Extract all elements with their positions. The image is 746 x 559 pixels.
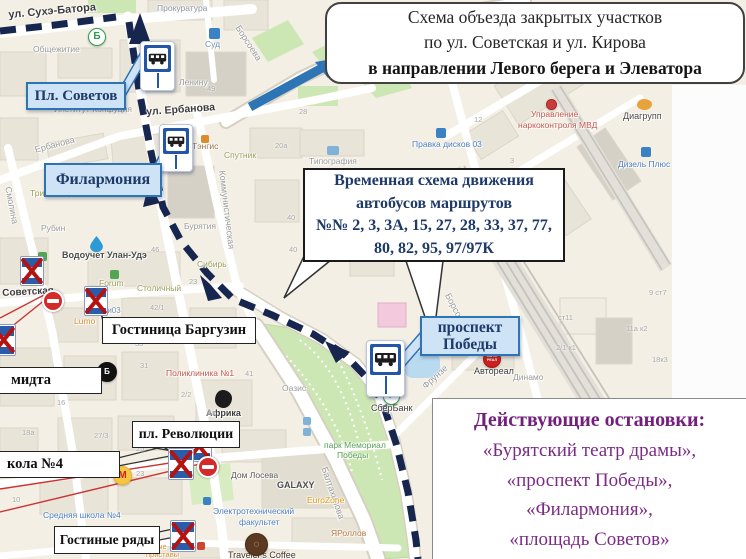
bus-sign-icon: [370, 344, 401, 375]
bus-stop-prospekt-pobedy: [366, 340, 405, 397]
map-label: Типография: [309, 157, 357, 166]
map-label: Управление: [531, 110, 578, 119]
house-number: 41: [245, 370, 253, 378]
callout-pl-revolucii: пл. Революции: [132, 421, 240, 448]
map-label: EuroZone: [307, 496, 344, 505]
house-number: 9 ст7: [649, 289, 667, 297]
map-label: Автореал: [474, 367, 514, 376]
active-stop-item: «площадь Советов»: [433, 525, 746, 555]
callout-pobedy-line1: проспект: [438, 319, 503, 336]
tengis-icon: [201, 135, 209, 143]
closed-stop-icon: [20, 256, 44, 286]
bus-stop-pole: [175, 155, 177, 169]
bus-stop-filarmonia: [159, 124, 193, 172]
callout-pl-sovetov: Пл. Советов: [26, 82, 126, 110]
callout-pl-revolucii-label: пл. Революции: [139, 427, 234, 443]
map-label: Lumo: [74, 317, 95, 326]
callout-school-4-label: кола №4: [7, 456, 63, 473]
map-label: Ленину: [179, 78, 208, 87]
map-label: Поликлиника №1: [166, 369, 234, 378]
house-number: 49: [207, 85, 215, 93]
active-stop-item: «Бурятский театр драмы»,: [433, 436, 746, 466]
house-number: ст11: [558, 314, 573, 322]
callout-filarmonia: Филармония: [44, 163, 162, 197]
closed-stop-icon: [0, 324, 16, 356]
no-entry-icon: [197, 456, 219, 478]
house-number: 40: [289, 246, 297, 254]
scheme-title-line1: Схема объезда закрытых участков: [327, 5, 743, 31]
house-number: 27/3: [94, 432, 109, 440]
map-label: Дом Лосева: [231, 471, 278, 480]
court-icon: [209, 28, 220, 39]
coffee-icon: ◌: [245, 533, 268, 556]
active-stop-item: «проспект Победы»,: [433, 466, 746, 496]
map-label: Динамо: [513, 373, 544, 382]
callout-gostinye-ryady: Гостиные ряды: [54, 526, 160, 554]
map-label: Спутник: [224, 151, 256, 160]
shop-icon: [197, 542, 205, 550]
bus-stop-pole: [157, 73, 159, 88]
callout-prospekt-pobedy: проспект Победы: [420, 316, 520, 356]
callout-gostinye-ryady-label: Гостиные ряды: [60, 532, 154, 548]
house-number: 12: [474, 116, 482, 124]
closed-stop-icon: [84, 286, 108, 316]
callout-shmidta: мидта: [0, 367, 102, 394]
bus-sign-icon: [163, 128, 189, 154]
map-label: Общежитие: [33, 45, 80, 54]
active-stops-box: Действующие остановки: «Бурятский театр …: [432, 398, 746, 559]
house-number: 2а: [207, 409, 215, 417]
callout-filarmonia-label: Филармония: [56, 171, 150, 189]
house-number: 2/1 к1: [556, 344, 576, 352]
routes-line4: 80, 82, 95, 97/97К: [305, 238, 563, 261]
map-label: Оазис: [282, 384, 306, 393]
house-number: 28: [299, 108, 307, 116]
wheel-repair-icon: [436, 128, 446, 138]
house-number: 3: [510, 157, 514, 165]
callout-hotel-barguzin-label: Гостиница Баргузин: [112, 322, 246, 339]
map-label: Победы: [337, 451, 368, 460]
house-number: 11а к2: [626, 325, 648, 333]
callout-pobedy-line2: Победы: [443, 336, 497, 353]
park-info-icon: [303, 428, 311, 436]
map-label: Суд: [205, 40, 220, 49]
callout-school-4: кола №4: [0, 451, 120, 478]
blank-margin: [672, 85, 746, 403]
house-number: 10: [12, 496, 20, 504]
water-meter-icon: [90, 236, 103, 257]
map-label: парк Мемориал: [324, 441, 386, 450]
map-label: Водоучет Улан-Удэ: [62, 251, 147, 260]
bus-sign-icon: [144, 45, 171, 72]
house-number: 18а: [22, 429, 35, 437]
print-house-icon: [327, 146, 339, 155]
scheme-title-box: Схема объезда закрытых участков по ул. С…: [325, 2, 745, 84]
house-number: 20а: [275, 142, 288, 150]
map-label: GALAXY: [277, 481, 315, 490]
house-number: 16: [57, 399, 65, 407]
map-label: Средняя школа №4: [43, 511, 121, 520]
house-number: 23: [136, 470, 144, 478]
house-number: 40: [287, 214, 295, 222]
mvd-pin-icon: [546, 99, 557, 110]
house-number: 42/1: [150, 304, 165, 312]
park-info-icon: [303, 417, 311, 425]
map-label: Бурятия: [184, 222, 216, 231]
map-label: Столичный: [137, 284, 181, 293]
map-label: Диагрупп: [623, 112, 662, 121]
routes-line3: №№ 2, 3, 3А, 15, 27, 28, 33, 37, 77,: [305, 215, 563, 238]
scheme-title-line2: по ул. Советская и ул. Кирова: [327, 30, 743, 56]
temporary-routes-box: Временная схема движения автобусов маршр…: [303, 168, 565, 262]
faculty-icon: [203, 497, 211, 505]
map-label: Рубин: [41, 224, 65, 233]
active-stops-title: Действующие остановки:: [433, 404, 746, 436]
map-label: СберБанк: [371, 404, 412, 413]
map-label: Электротехнический: [213, 507, 294, 516]
callout-hotel-barguzin: Гостиница Баргузин: [102, 317, 256, 344]
house-number: 31: [140, 362, 148, 370]
bus-stop-pl-sovetov: [140, 41, 175, 91]
map-label: Тэнгис: [192, 142, 218, 151]
house-number: 2/2: [181, 391, 191, 399]
house-number: 46: [151, 246, 159, 254]
bus-stop-pole: [385, 376, 387, 394]
active-stop-item: «Филармония»,: [433, 495, 746, 525]
scheme-title-line3: в направлении Левого берега и Элеватора: [327, 56, 743, 82]
routes-line2: автобусов маршрутов: [305, 193, 563, 216]
map-label: Прокуратура: [157, 4, 207, 13]
map-label: наркоконтроля МВД: [518, 121, 597, 130]
house-number: 18к3: [652, 356, 668, 364]
diesel-plus-icon: [641, 147, 651, 157]
callout-shmidta-label: мидта: [11, 372, 51, 389]
house-number: 23: [189, 278, 197, 286]
map-label: ЯРоллов: [331, 529, 366, 538]
callout-pl-sovetov-label: Пл. Советов: [35, 88, 118, 105]
map-label: Правка дисков 03: [412, 140, 482, 149]
b-station-icon: Б: [88, 28, 106, 46]
no-entry-icon: [42, 290, 64, 312]
map-label: Сибирь: [197, 260, 227, 269]
closed-stop-icon: [170, 520, 196, 552]
map-label: факультет: [239, 518, 279, 527]
map-label: Дизель Плюс: [618, 160, 670, 169]
forum-icon: [110, 270, 119, 279]
closed-stop-icon: [168, 448, 194, 480]
detour-scheme-map: ул. Сухэ-Батораул. ЕрбановаЕрбановаСовет…: [0, 0, 746, 559]
routes-line1: Временная схема движения: [305, 170, 563, 193]
